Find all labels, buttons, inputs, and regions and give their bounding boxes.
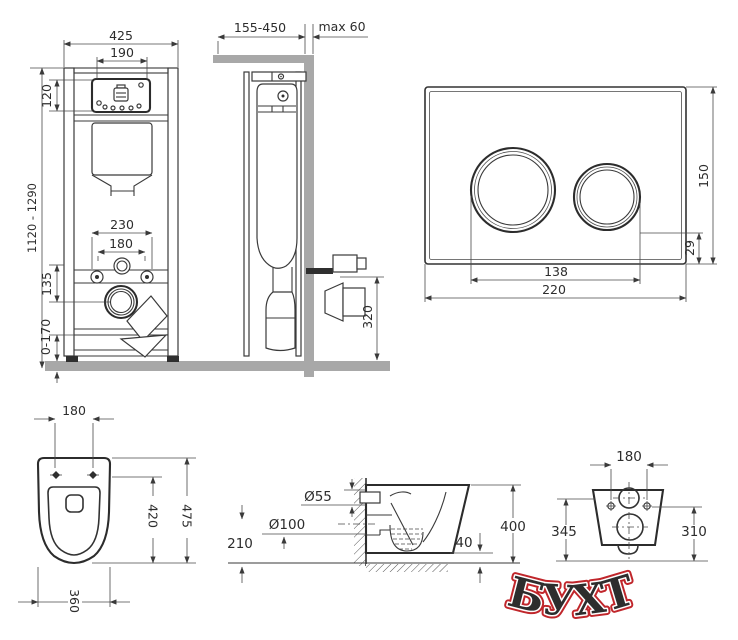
cistern-front	[92, 123, 152, 175]
bowl-back-view: 180 345 310	[550, 449, 710, 561]
dim-outlet-height-bowl: 210	[227, 536, 253, 552]
floor-bar	[45, 361, 390, 371]
dim-feet-range: 0-170	[38, 319, 53, 355]
dim-plate-height: 150	[696, 164, 711, 188]
dim-supply-span: 180	[109, 236, 133, 251]
wall-anchor-rod	[306, 268, 333, 274]
dim-frame-height-range: 1120 - 1290	[25, 183, 39, 253]
flush-plate-view: 150 29 138 220	[425, 87, 717, 302]
dim-button-bottom-margin: 29	[682, 240, 697, 256]
floor-hatch	[366, 564, 448, 572]
cistern-funnel	[92, 175, 152, 196]
frame-top-member	[74, 68, 168, 73]
toilet-installation-diagram: 425 190 120 1120 - 1290 230 180 135 0-17…	[0, 0, 738, 640]
dim-wall-max: max 60	[318, 19, 365, 34]
flush-plate	[425, 87, 686, 264]
dim-stud-span: 230	[110, 217, 134, 232]
flush-pipe-port	[114, 258, 130, 274]
wall-hatch	[354, 478, 366, 566]
dim-clearance: 40	[455, 535, 472, 551]
dim-back-left-height: 345	[551, 524, 577, 540]
dim-plate-width: 220	[542, 282, 566, 297]
bowl-outline-side	[366, 485, 469, 553]
dim-bowl-inner-length: 420	[146, 504, 161, 528]
dim-button-span: 138	[544, 264, 568, 279]
bowl-top-view: 180 475 420 360	[18, 403, 196, 620]
dim-outlet-diameter: Ø100	[269, 517, 305, 533]
dim-hole-span-back: 180	[616, 449, 642, 465]
frame-foot	[167, 356, 179, 362]
top-slab-bar	[213, 55, 308, 63]
dim-bowl-length: 475	[180, 504, 195, 528]
dim-back-right-height: 310	[681, 524, 707, 540]
screw-icon	[139, 83, 143, 87]
dim-window-height: 120	[39, 84, 54, 108]
frame-side-view: 155-450 max 60 320	[218, 19, 384, 360]
dim-inlet-diameter: Ø55	[304, 489, 332, 505]
frame-front-view: 425 190 120 1120 - 1290 230 180 135 0-17…	[25, 28, 179, 383]
flush-pipe-side	[273, 267, 292, 292]
small-flush-button	[574, 164, 640, 230]
screw-icon	[97, 101, 101, 105]
dim-window-width: 190	[110, 45, 134, 60]
bowl-side-view: Ø55 Ø100 210 40 400	[227, 478, 530, 583]
inlet-stub	[360, 492, 380, 503]
outlet-bend	[266, 292, 295, 351]
dim-outlet-drop: 135	[39, 272, 54, 296]
dim-frame-width: 425	[109, 28, 133, 43]
big-flush-button	[471, 148, 555, 232]
outlet-fitting	[325, 283, 343, 321]
frame-rail-side	[244, 72, 249, 356]
technical-drawing-sheet: 425 190 120 1120 - 1290 230 180 135 0-17…	[0, 0, 738, 640]
dim-bowl-height: 400	[500, 519, 526, 535]
frame-foot	[66, 356, 78, 362]
dim-outlet-height: 320	[360, 305, 375, 329]
supply-fitting	[333, 255, 357, 272]
frame-right-rail	[168, 68, 178, 356]
dim-hole-span-top: 180	[62, 403, 86, 418]
flush-valve-icon	[114, 88, 128, 101]
dim-depth-range: 155-450	[234, 20, 286, 35]
wall-bar	[304, 55, 314, 377]
dim-bowl-width: 360	[67, 589, 82, 613]
